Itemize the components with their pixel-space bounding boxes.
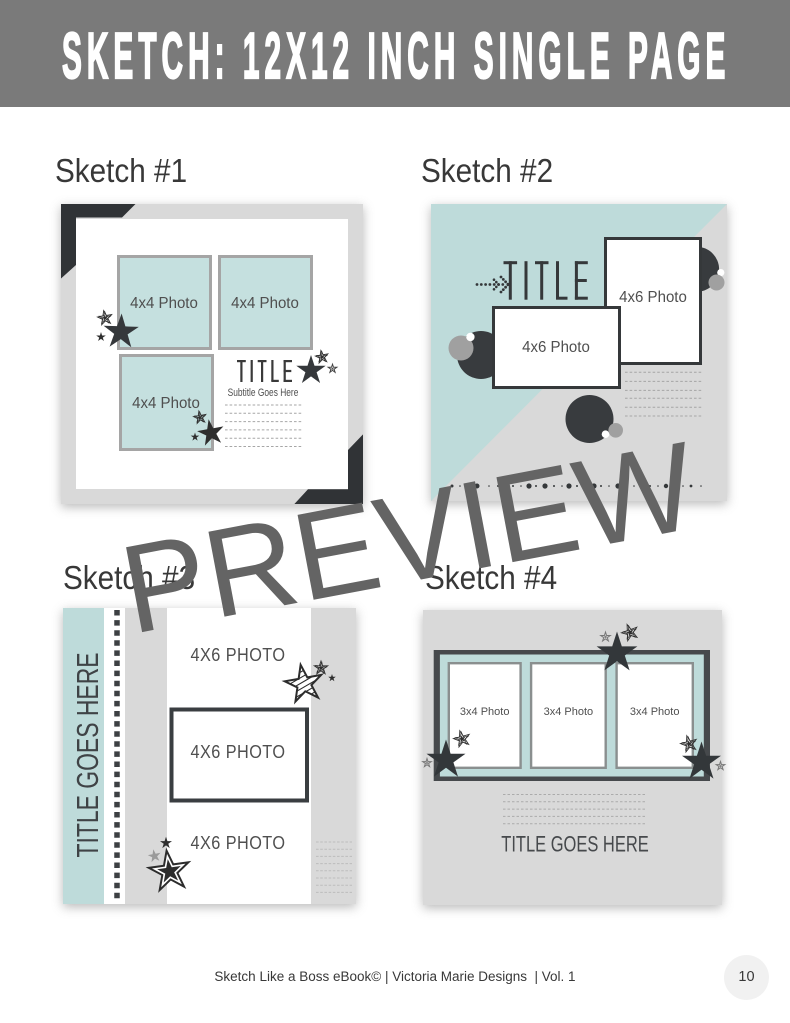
svg-text:TITLE GOES HERE: TITLE GOES HERE xyxy=(70,652,105,857)
svg-text:3x4 Photo: 3x4 Photo xyxy=(544,706,594,718)
svg-text:4x6 Photo: 4x6 Photo xyxy=(619,289,687,307)
svg-text:4x6 Photo: 4x6 Photo xyxy=(522,339,590,357)
svg-text:4x4 Photo: 4x4 Photo xyxy=(132,395,200,413)
svg-text:3x4 Photo: 3x4 Photo xyxy=(460,706,510,718)
svg-text:4X6 PHOTO: 4X6 PHOTO xyxy=(191,832,286,853)
svg-text:4X6 PHOTO: 4X6 PHOTO xyxy=(191,741,286,762)
svg-text:4x4 Photo: 4x4 Photo xyxy=(231,295,299,313)
svg-text:4x4 Photo: 4x4 Photo xyxy=(130,295,198,313)
svg-text:3x4 Photo: 3x4 Photo xyxy=(630,706,680,718)
svg-text:Subtitle Goes Here: Subtitle Goes Here xyxy=(228,387,299,400)
svg-text:TITLE GOES HERE: TITLE GOES HERE xyxy=(501,832,648,857)
